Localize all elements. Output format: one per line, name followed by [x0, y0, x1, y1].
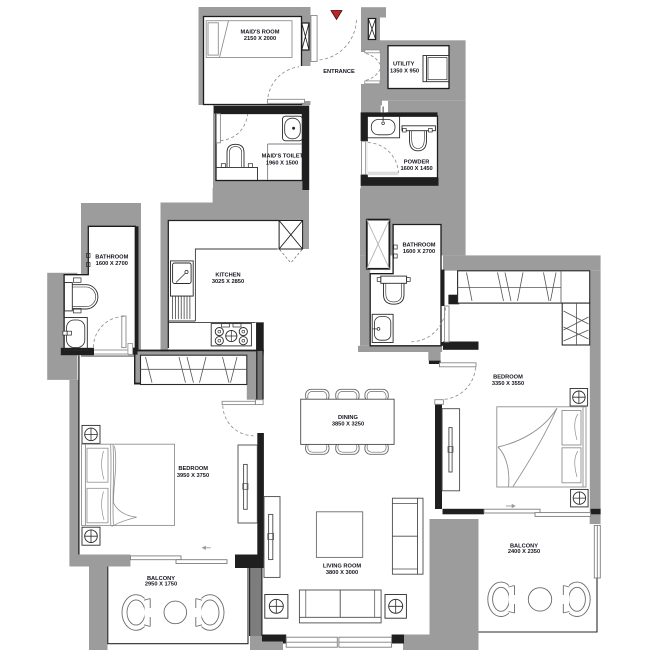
- svg-text:2400 X 2350: 2400 X 2350: [508, 549, 540, 555]
- svg-text:POWDER: POWDER: [404, 160, 430, 166]
- svg-text:1600 X 1450: 1600 X 1450: [400, 166, 432, 172]
- svg-text:BATHROOM: BATHROOM: [95, 254, 128, 260]
- svg-text:DINING: DINING: [338, 415, 358, 421]
- svg-text:MAID'S ROOM: MAID'S ROOM: [241, 29, 280, 35]
- svg-text:2150 X 2000: 2150 X 2000: [244, 36, 276, 42]
- svg-text:1600 X 2700: 1600 X 2700: [96, 261, 128, 267]
- svg-text:3350 X 3550: 3350 X 3550: [492, 381, 524, 387]
- svg-text:3800 X 3000: 3800 X 3000: [326, 570, 358, 576]
- svg-text:BATHROOM: BATHROOM: [402, 243, 435, 249]
- svg-text:LIVING ROOM: LIVING ROOM: [323, 563, 361, 569]
- svg-text:3850 X 3250: 3850 X 3250: [332, 421, 364, 427]
- svg-text:KITCHEN: KITCHEN: [215, 273, 240, 279]
- svg-text:3950 X 3750: 3950 X 3750: [177, 473, 209, 479]
- svg-text:BEDROOM: BEDROOM: [178, 466, 208, 472]
- svg-text:ENTRANCE: ENTRANCE: [323, 69, 355, 75]
- svg-text:MAID'S TOILET: MAID'S TOILET: [262, 154, 304, 160]
- svg-text:1960 X 1500: 1960 X 1500: [266, 161, 298, 167]
- svg-text:2950 X 1750: 2950 X 1750: [145, 582, 177, 588]
- svg-text:3025 X 2850: 3025 X 2850: [212, 279, 244, 285]
- svg-text:BEDROOM: BEDROOM: [493, 374, 523, 380]
- svg-text:1350 X 950: 1350 X 950: [390, 69, 419, 75]
- svg-text:1600 X 2700: 1600 X 2700: [403, 249, 435, 255]
- svg-text:UTILITY: UTILITY: [393, 62, 415, 68]
